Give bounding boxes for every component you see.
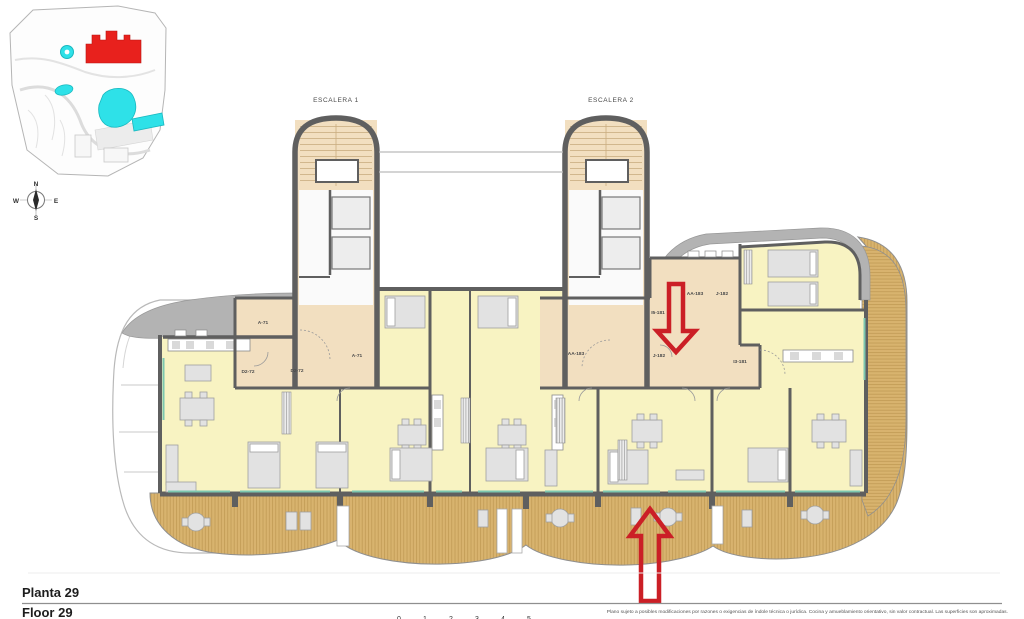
footer: Planta 29 Floor 29 0 1 2 3 4 5 Plano suj…	[22, 573, 1008, 619]
unit-label: D2-72	[241, 369, 254, 375]
plan-title-es: Planta 29	[22, 585, 79, 600]
unit-label: J-182	[653, 353, 666, 359]
tower-bridge	[379, 152, 563, 172]
compass-s: S	[34, 215, 39, 222]
site-structure	[75, 135, 91, 157]
stair-landing-2	[586, 160, 628, 182]
unit-label: D2-72	[290, 368, 303, 374]
table	[185, 365, 211, 381]
elevator-car	[332, 197, 370, 229]
unit-label: AA-183	[687, 291, 704, 297]
plan-title-en: Floor 29	[22, 605, 73, 619]
elevator-car	[602, 197, 640, 229]
escalera-1-label: ESCALERA 1	[313, 97, 359, 104]
floor-plan-svg: N S W E	[0, 0, 1024, 619]
compass-w: W	[13, 198, 20, 205]
unit-label: A-71	[258, 320, 269, 326]
unit-label: AA-183	[568, 351, 585, 357]
unit-label: I5-181	[651, 310, 665, 316]
elevator-car	[602, 237, 640, 269]
site-plan-inset	[10, 6, 166, 176]
elevator-car	[332, 237, 370, 269]
floorplan-page: N S W E	[0, 0, 1024, 619]
escalera-2-label: ESCALERA 2	[588, 97, 634, 104]
disclaimer-text: Plano sujeto a posibles modificaciones p…	[607, 609, 1008, 615]
compass-rose: N S W E	[13, 181, 59, 222]
unit-label: I3-181	[733, 359, 747, 365]
unit-label: J-182	[716, 291, 729, 297]
compass-e: E	[54, 198, 59, 205]
round-pool-island	[65, 50, 70, 55]
stair-landing-1	[316, 160, 358, 182]
compass-n: N	[34, 181, 39, 188]
unit-label: A-71	[352, 353, 363, 359]
site-structure-2	[104, 148, 128, 162]
